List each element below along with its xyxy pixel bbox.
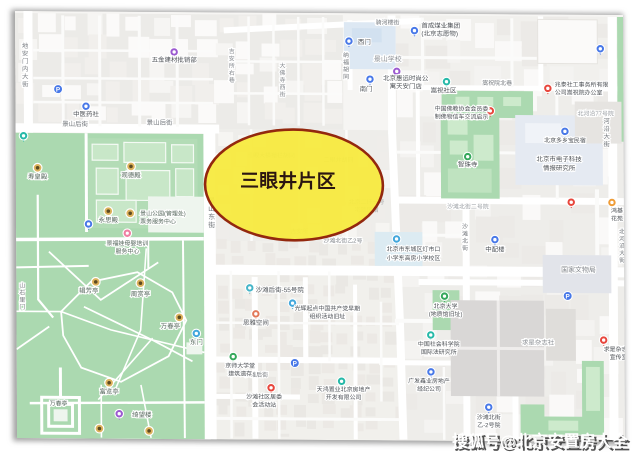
- svg-text:纳: 纳: [343, 51, 349, 59]
- svg-text:门: 门: [19, 303, 25, 311]
- svg-text:沿: 沿: [603, 124, 610, 133]
- svg-text:智珠寺: 智珠寺: [458, 160, 478, 169]
- svg-text:大: 大: [603, 132, 610, 141]
- svg-text:街: 街: [462, 244, 468, 252]
- svg-text:沙: 沙: [462, 223, 468, 230]
- svg-text:同: 同: [343, 74, 349, 81]
- svg-text:求是杂志社: 求是杂志社: [522, 338, 555, 347]
- svg-text:骑河楼街: 骑河楼街: [376, 18, 400, 26]
- svg-text:万春亭: 万春亭: [50, 399, 68, 407]
- svg-text:服务中心: 服务中心: [115, 247, 139, 255]
- svg-text:里: 里: [19, 297, 25, 304]
- svg-text:地: 地: [22, 41, 29, 50]
- svg-text:街: 街: [208, 220, 215, 229]
- svg-text:辑芳亭: 辑芳亭: [79, 286, 99, 295]
- svg-text:东门: 东门: [190, 337, 203, 346]
- svg-text:福: 福: [343, 58, 349, 66]
- svg-text:京师大学堂: 京师大学堂: [225, 362, 255, 370]
- svg-text:巷: 巷: [229, 76, 235, 84]
- svg-text:胡: 胡: [343, 65, 349, 73]
- svg-text:滩: 滩: [462, 230, 468, 238]
- svg-text:情报研究所: 情报研究所: [543, 163, 576, 172]
- svg-text:佛: 佛: [280, 69, 286, 77]
- svg-text:首成煤业集团: 首成煤业集团: [421, 21, 460, 30]
- svg-text:国家文物局: 国家文物局: [561, 265, 596, 274]
- svg-text:乙-2号院: 乙-2号院: [477, 421, 500, 429]
- svg-text:(北京志愿物): (北京志愿物): [421, 29, 458, 38]
- svg-text:南门: 南门: [360, 84, 373, 93]
- svg-text:大: 大: [279, 62, 285, 70]
- svg-text:北京惠远时尚公: 北京惠远时尚公: [383, 73, 429, 82]
- svg-text:街: 街: [603, 139, 610, 148]
- svg-text:中医药社: 中医药社: [73, 109, 99, 118]
- svg-text:街: 街: [280, 90, 286, 98]
- svg-text:中国社会科学院: 中国社会科学院: [418, 340, 460, 348]
- svg-text:河: 河: [603, 117, 610, 125]
- svg-text:(地质馆旧址): (地质馆旧址): [429, 310, 463, 318]
- svg-text:票务服务中心: 票务服务中心: [140, 217, 176, 225]
- svg-text:富览亭: 富览亭: [99, 387, 119, 396]
- svg-text:西门: 西门: [358, 37, 371, 46]
- svg-text:北京大学: 北京大学: [434, 302, 458, 310]
- svg-text:北京市电子科技: 北京市电子科技: [536, 154, 582, 163]
- svg-text:景山后街: 景山后街: [62, 119, 88, 128]
- svg-text:西: 西: [280, 84, 286, 91]
- svg-text:寓天安门店: 寓天安门店: [390, 81, 423, 90]
- svg-text:沙滩北街乙2号: 沙滩北街乙2号: [323, 236, 362, 244]
- svg-text:东: 东: [208, 212, 215, 221]
- svg-text:安: 安: [229, 54, 235, 62]
- svg-text:安: 安: [22, 49, 29, 58]
- svg-text:周赏亭: 周赏亭: [131, 289, 151, 298]
- svg-text:街: 街: [22, 79, 29, 88]
- svg-text:绮望楼: 绮望楼: [132, 410, 152, 419]
- svg-text:国际法研究所: 国际法研究所: [421, 348, 457, 356]
- svg-text:嵩祝社区: 嵩祝社区: [431, 86, 457, 95]
- svg-text:思雅空间: 思雅空间: [243, 318, 269, 327]
- svg-text:花苑: 花苑: [611, 214, 623, 222]
- svg-text:永思殿: 永思殿: [99, 215, 119, 224]
- svg-text:会活动站: 会活动站: [252, 401, 276, 409]
- svg-text:沙滩北街二号院: 沙滩北街二号院: [447, 202, 489, 210]
- svg-text:寺: 寺: [280, 76, 286, 84]
- svg-text:景山后街: 景山后街: [147, 118, 173, 127]
- svg-text:沙滩后街-55号院: 沙滩后街-55号院: [256, 285, 305, 294]
- svg-text:所: 所: [229, 62, 235, 70]
- svg-text:沙滩北街: 沙滩北街: [477, 413, 501, 421]
- svg-text:开发有限公司: 开发有限公司: [326, 393, 362, 401]
- svg-text:中配楼: 中配楼: [485, 245, 505, 254]
- svg-text:沙滩社区居委: 沙滩社区居委: [246, 393, 282, 401]
- svg-text:右: 右: [229, 69, 235, 77]
- svg-text:北京多乡宝民宿: 北京多乡宝民宿: [544, 136, 586, 144]
- svg-text:门: 门: [22, 56, 29, 65]
- svg-text:鸿基: 鸿基: [611, 206, 623, 214]
- svg-text:景福娃母婴培训: 景福娃母婴培训: [106, 239, 148, 247]
- svg-text:万春亭: 万春亭: [161, 321, 181, 330]
- svg-text:三眼井片区: 三眼井片区: [240, 169, 336, 193]
- svg-text:广发鑫业房地产: 广发鑫业房地产: [408, 377, 450, 385]
- svg-text:观德殿: 观德殿: [121, 170, 141, 179]
- svg-text:山: 山: [19, 281, 25, 289]
- svg-text:经纪公司: 经纪公司: [417, 385, 441, 393]
- svg-text:建筑遗存: 建筑遗存: [228, 370, 252, 378]
- svg-text:嵩祝院北巷: 嵩祝院北巷: [482, 79, 512, 87]
- svg-text:北: 北: [462, 237, 468, 245]
- svg-text:寿皇殿: 寿皇殿: [28, 172, 48, 181]
- svg-text:组织活动旧址: 组织活动旧址: [309, 312, 345, 320]
- svg-text:右: 右: [19, 289, 25, 297]
- svg-text:吉: 吉: [229, 48, 235, 55]
- svg-text:P: P: [56, 87, 61, 94]
- svg-text:内: 内: [22, 64, 29, 73]
- svg-text:搜狐号@北京安置房大全: 搜狐号@北京安置房大全: [452, 432, 629, 451]
- svg-text:P: P: [293, 361, 298, 368]
- svg-text:五金建材批销部: 五金建材批销部: [152, 55, 198, 64]
- svg-text:大: 大: [22, 72, 29, 81]
- svg-text:P: P: [566, 294, 571, 301]
- svg-text:景山学校: 景山学校: [374, 54, 402, 63]
- svg-text:北河沿77号院: 北河沿77号院: [577, 109, 613, 117]
